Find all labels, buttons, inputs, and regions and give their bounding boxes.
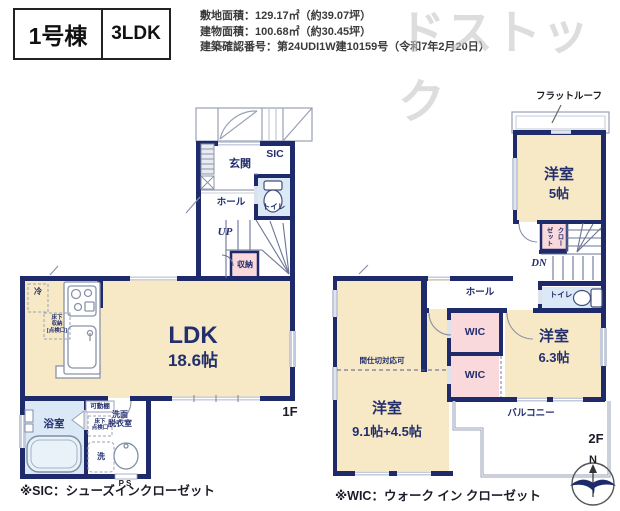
unit-label: 1号棟: [15, 10, 103, 58]
floor2-geometry: [325, 80, 620, 511]
toilet-icon: [264, 181, 282, 212]
flat-roof: [512, 105, 609, 133]
layout-label: 3LDK: [103, 10, 169, 58]
land-area: 敷地面積：129.17㎡（約39.07坪）: [200, 9, 600, 25]
building-permit: 建築確認番号：第24UDI1W建10159号（令和7年2月20日）: [200, 40, 600, 56]
floor1-geometry: [0, 80, 320, 511]
building-area: 建物面積：100.68㎡（約30.45坪）: [200, 25, 600, 41]
sic-footnote: ※SIC：シューズインクローゼット: [20, 480, 215, 499]
wic-footnote: ※WIC：ウォーク イン クローゼット: [335, 485, 541, 504]
property-info: 敷地面積：129.17㎡（約39.07坪） 建物面積：100.68㎡（約30.4…: [200, 9, 600, 56]
genkan-details: [201, 144, 258, 193]
floor2-plan: フラットルーフ 洋室 5帖 クローゼット DN ホール トイレ WIC WIC …: [325, 80, 620, 511]
floorplan-page: 1号棟 3LDK 敷地面積：129.17㎡（約39.07坪） 建物面積：100.…: [0, 0, 620, 511]
unit-type-box: 1号棟 3LDK: [13, 8, 171, 60]
entrance-porch: [196, 108, 312, 141]
floor1-plan: 玄関 SIC トイレ ホール UP 収納 LDK 18.6帖 冷 床下 収納 […: [0, 80, 320, 511]
room-fills: [335, 132, 605, 471]
